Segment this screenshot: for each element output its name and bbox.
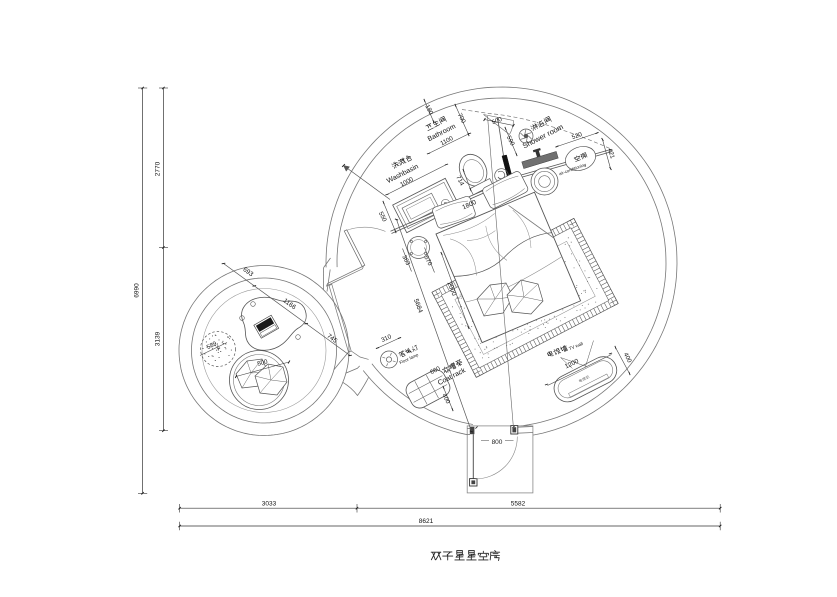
svg-text:3139: 3139 — [154, 331, 161, 346]
svg-text:2770: 2770 — [154, 161, 161, 176]
svg-text:3033: 3033 — [262, 501, 277, 508]
svg-text:5582: 5582 — [511, 501, 526, 508]
svg-text:800: 800 — [492, 439, 503, 446]
svg-text:6990: 6990 — [134, 283, 141, 298]
svg-text:8621: 8621 — [419, 518, 434, 525]
